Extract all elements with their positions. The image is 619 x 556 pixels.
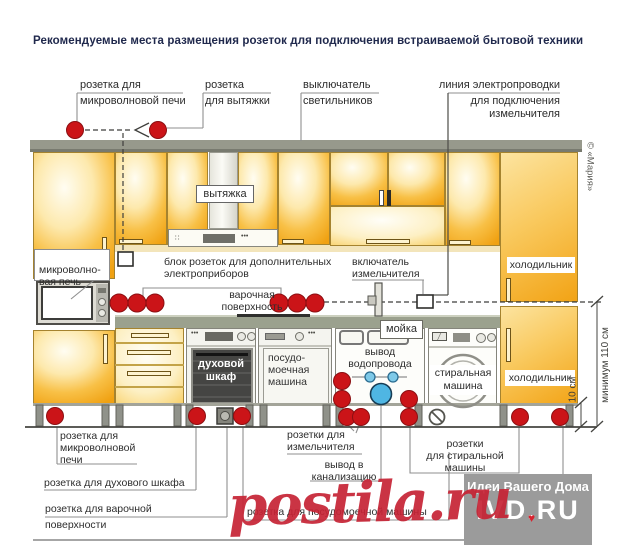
kitchen-socket-diagram: Рекомендуемые места размещения розеток д… <box>0 0 619 556</box>
dishwasher-bar <box>265 333 285 340</box>
water-outlet-label: вывод водопровода <box>337 346 423 370</box>
callout-grinder-sockets: розетки для измельчителя <box>287 429 367 453</box>
upper-door-5b <box>388 152 445 206</box>
oven-buttons-icon: ••• <box>191 330 198 337</box>
dishwasher-dots-icon: ••• <box>308 330 315 337</box>
fridge-lower-label: холодильник <box>505 370 575 386</box>
copyright-maria: © «Мария» <box>585 137 596 197</box>
fridge-upper-label: холодильник <box>507 257 575 273</box>
hood-display <box>203 234 235 243</box>
upper-door-6-handle <box>449 240 471 245</box>
upper-door-1 <box>115 152 167 245</box>
dishwasher-label: посудо- моечная машина <box>268 352 328 389</box>
callout-microwave-socket: розетка для микроволновой печи <box>80 79 186 108</box>
callout-microwave-socket-bottom: розетка для микроволновой печи <box>60 430 150 467</box>
upper-door-4 <box>278 152 330 245</box>
dishwasher-panel-line <box>259 345 331 347</box>
oven-panel-line <box>187 345 255 347</box>
drawer-handle-2 <box>127 350 171 355</box>
hood-buttons-icon: ∷ <box>175 234 179 242</box>
washer-label: стиральная машина <box>430 365 496 395</box>
upper-door-1-handle <box>119 239 143 244</box>
microwave-label: микроволно- вая печь <box>34 249 110 281</box>
hood-dots-icon: ••• <box>241 233 248 240</box>
sink-bowl-left <box>339 330 364 345</box>
cooktop-edge <box>237 314 310 317</box>
drawer-handle-1 <box>131 333 169 338</box>
upper-flap-handle <box>366 239 410 244</box>
microwave-door <box>41 286 93 320</box>
cabinet-base-edge <box>33 403 578 406</box>
callout-cooktop-socket-line1: розетка для варочной <box>45 503 205 515</box>
washer-knob-1 <box>476 333 486 343</box>
washer-display <box>453 333 470 342</box>
cabinet-legs <box>36 405 573 426</box>
sink-faucet <box>368 283 382 316</box>
oven-door-handle <box>196 353 248 356</box>
drawer-handle-3 <box>127 371 171 376</box>
upper-door-5b-handle <box>387 190 391 206</box>
upper-door-5a-handle <box>379 190 384 206</box>
socket-block-label: блок розеток для дополнительных электроп… <box>164 256 364 280</box>
oven-knob-1 <box>237 332 246 341</box>
dishwasher-knob <box>295 332 304 341</box>
sink-label: мойка <box>380 320 423 339</box>
hood-canopy: ∷ ••• <box>168 229 278 247</box>
microwave-knob-2 <box>98 309 106 317</box>
postila-watermark: postila.ru <box>227 463 619 539</box>
cooktop-label: варочная поверхность <box>213 289 291 313</box>
fridge-upper-section <box>500 152 578 302</box>
upper-door-4-handle <box>282 239 304 244</box>
cabinet-cornice <box>30 140 582 152</box>
no-socket-symbol <box>430 410 445 425</box>
wiring-arrow-icon <box>135 123 149 137</box>
washer-knob-2 <box>487 333 496 342</box>
upper-door-6 <box>445 152 500 246</box>
fridge-lower-handle <box>506 328 511 362</box>
oven-knob-2 <box>247 332 256 341</box>
drawer-divider-2 <box>115 364 184 366</box>
page-title: Рекомендуемые места размещения розеток д… <box>33 35 593 47</box>
microwave-knob-1 <box>98 298 106 306</box>
tall-cabinet-lower-handle <box>103 334 108 364</box>
grinder-switch-label: включатель измельчителя <box>352 256 432 280</box>
fridge-upper-handle <box>506 278 511 302</box>
callout-grinder-line: линия электропроводки для подключения из… <box>430 79 560 122</box>
cooktop-power-outlet <box>217 408 233 424</box>
dimension-10cm: 10 см <box>568 373 579 407</box>
callout-light-switch: выключатель светильников <box>303 79 372 108</box>
washer-detergent-drawer <box>432 332 447 341</box>
washer-panel-line <box>429 346 496 348</box>
oven-display <box>205 332 233 341</box>
dimension-min-110: минимум 110 см <box>600 305 612 425</box>
microwave-control-panel <box>96 284 108 322</box>
callout-oven-socket: розетка для духового шкафа <box>44 477 214 489</box>
drawer-divider-1 <box>115 342 184 344</box>
microwave-display <box>98 288 106 293</box>
callout-hood-socket: розетка для вытяжки <box>205 79 270 108</box>
drawer-unit <box>115 328 184 405</box>
callout-cooktop-socket-line2: поверхности <box>45 519 155 531</box>
hood-label: вытяжка <box>196 185 254 203</box>
dimension-lines <box>575 296 603 432</box>
drawer-divider-3 <box>115 386 184 388</box>
fridge-lower-section <box>500 306 578 406</box>
oven-label: духовой шкаф <box>192 358 250 384</box>
